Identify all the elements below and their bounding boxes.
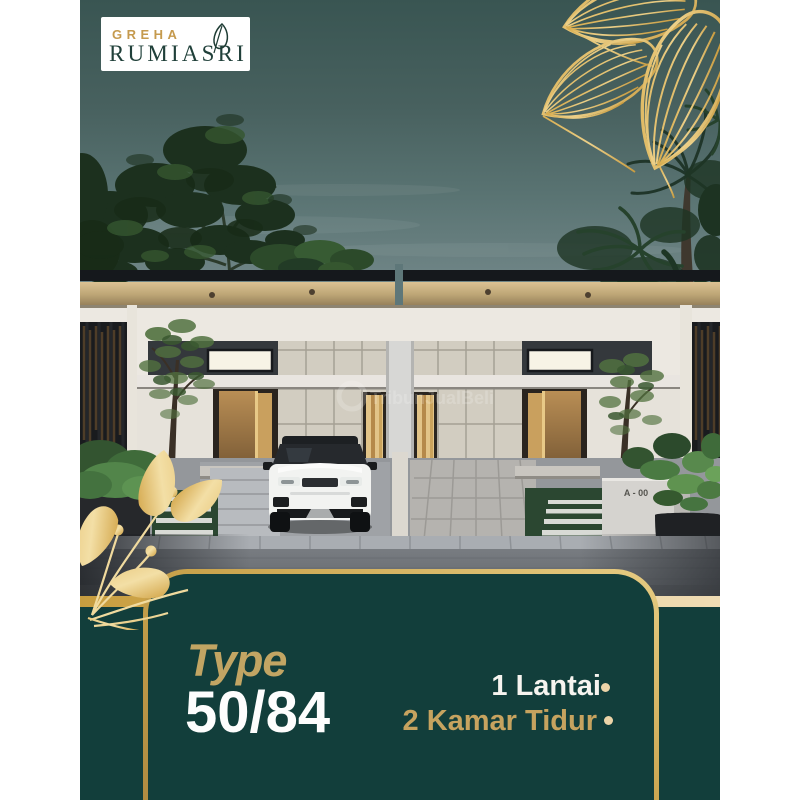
- svg-text:TribunJualBeli: TribunJualBeli: [370, 388, 494, 408]
- svg-text:A - 00: A - 00: [624, 488, 648, 498]
